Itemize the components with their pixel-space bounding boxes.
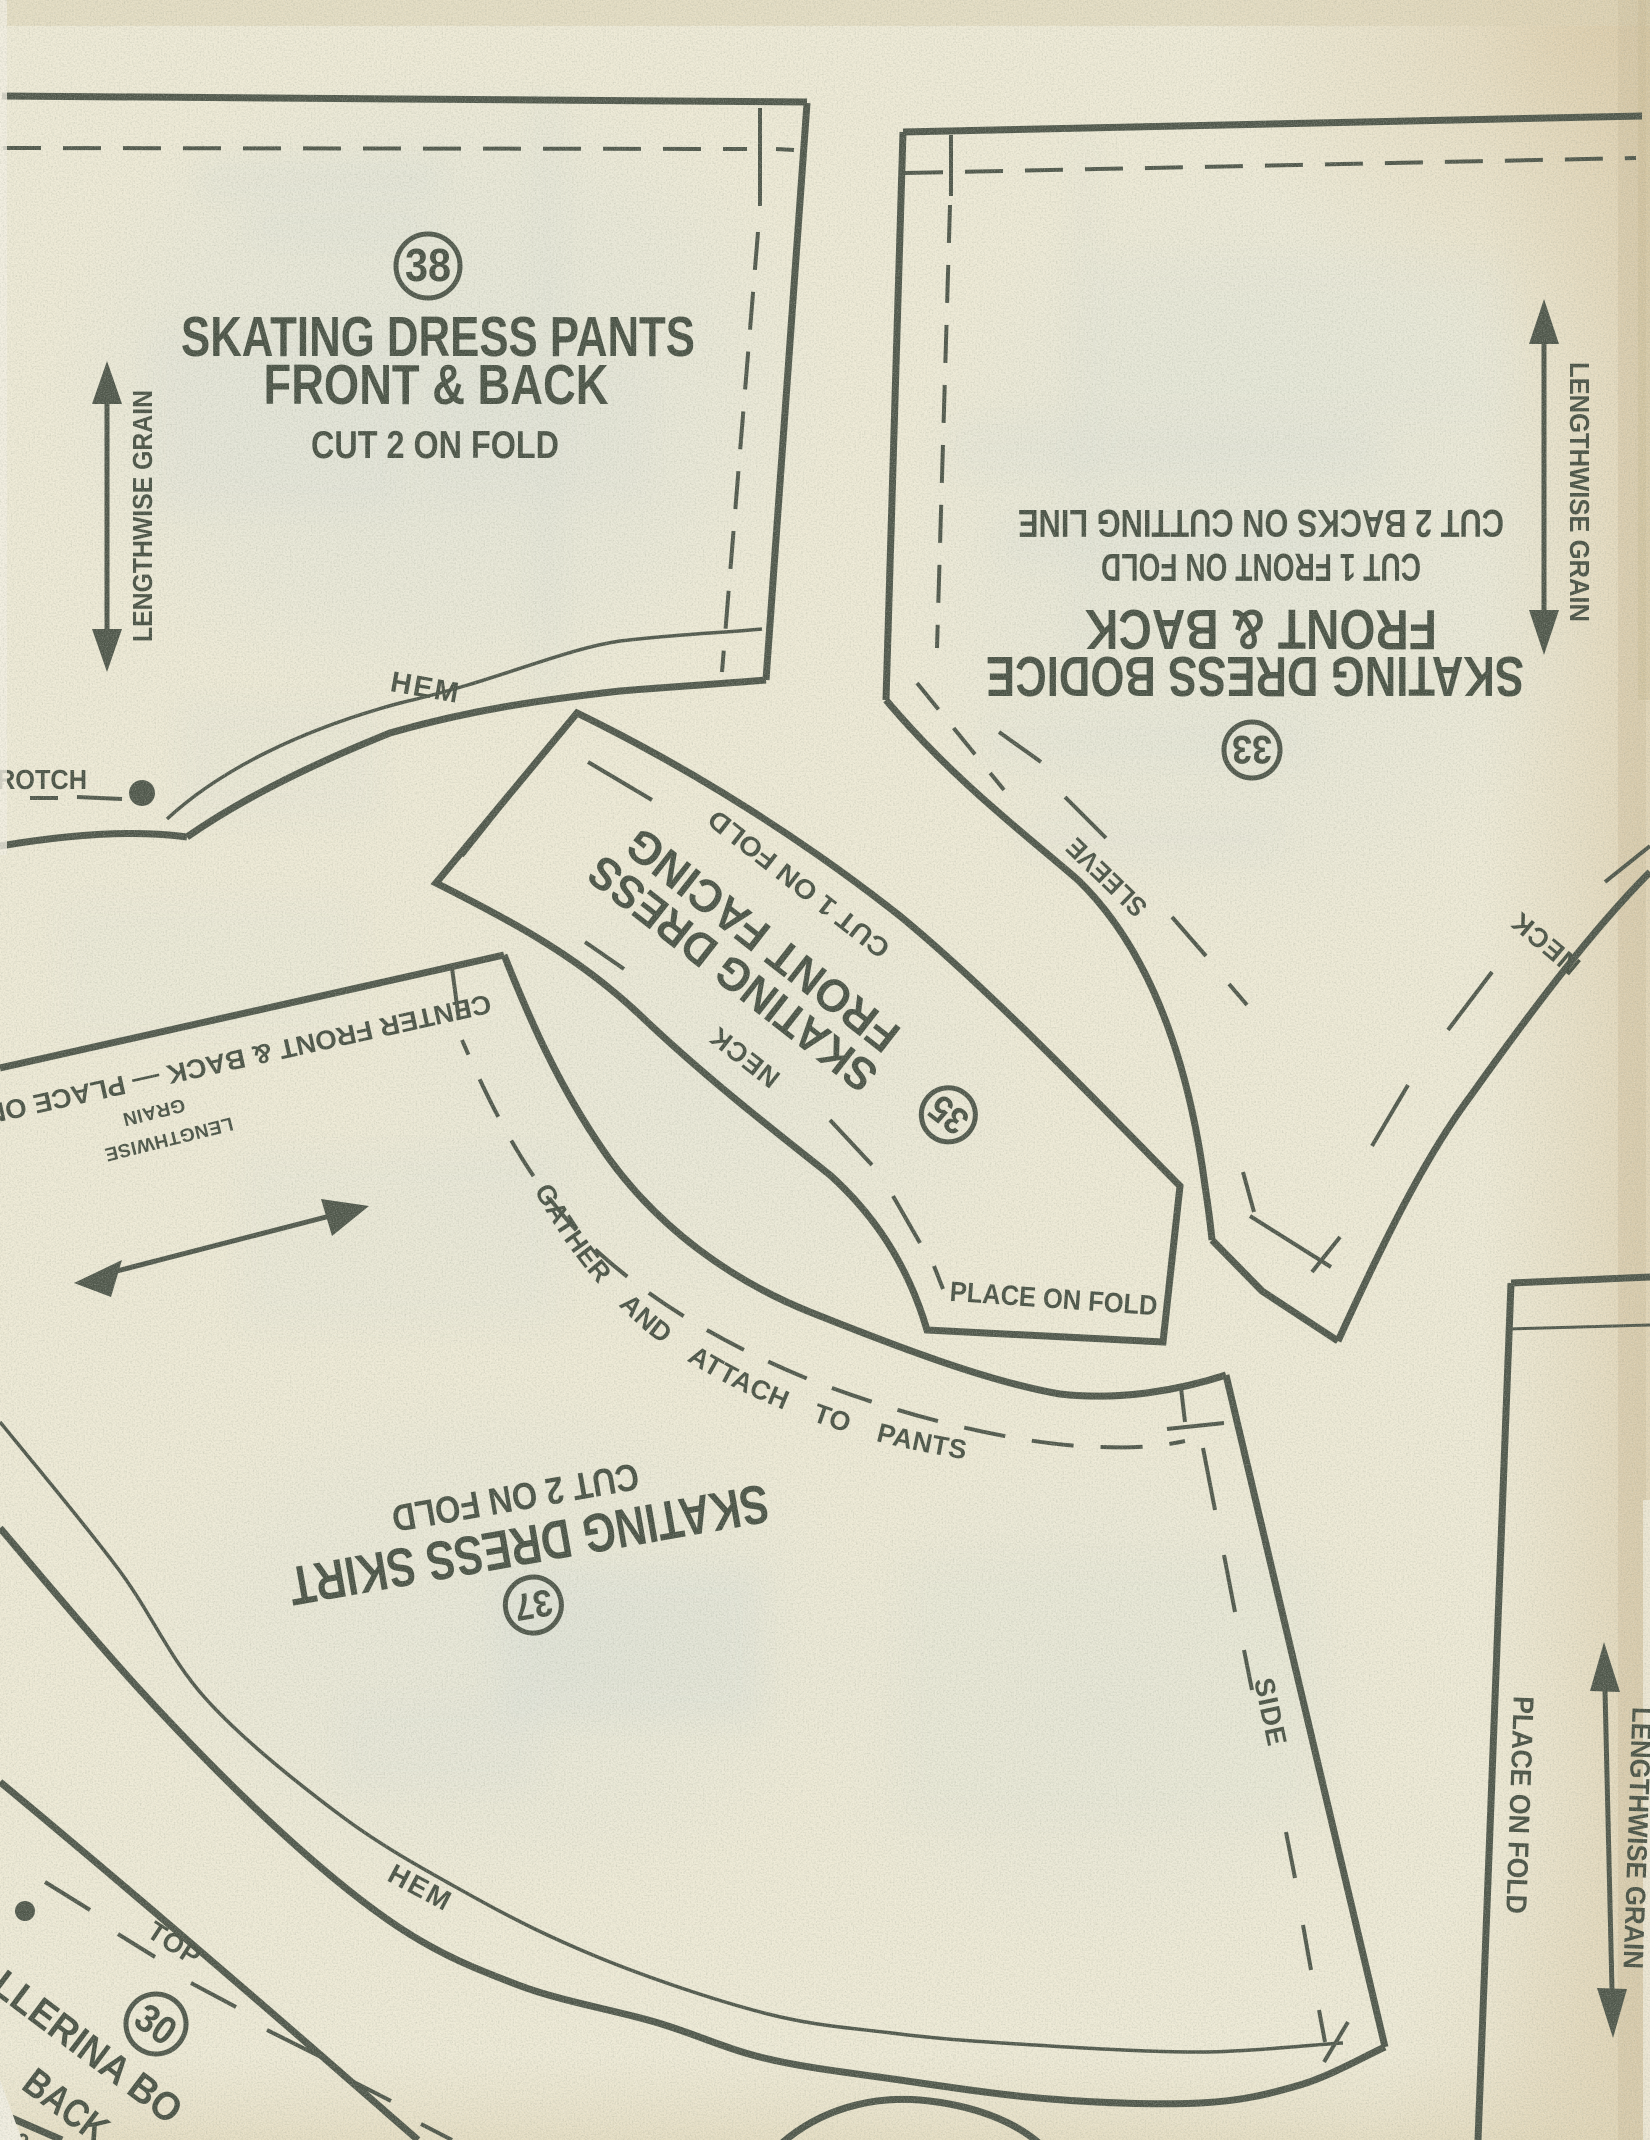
svg-text:37: 37 [511,1580,556,1628]
svg-text:FRONT & BACK: FRONT & BACK [264,353,609,417]
svg-text:CUT 2 ON FOLD: CUT 2 ON FOLD [311,424,559,467]
svg-text:38: 38 [405,239,451,291]
svg-text:33: 33 [1232,727,1272,771]
svg-text:CUT 1 FRONT ON FOLD: CUT 1 FRONT ON FOLD [1101,545,1421,588]
svg-text:LENGTHWISE GRAIN: LENGTHWISE GRAIN [1564,362,1595,622]
svg-text:FRONT & BACK: FRONT & BACK [1085,597,1437,661]
svg-text:CUT 2 BACKS ON CUTTING LINE: CUT 2 BACKS ON CUTTING LINE [1018,501,1504,544]
svg-text:ROTCH: ROTCH [0,764,87,795]
svg-text:LENGTHWISE GRAIN: LENGTHWISE GRAIN [127,390,158,642]
